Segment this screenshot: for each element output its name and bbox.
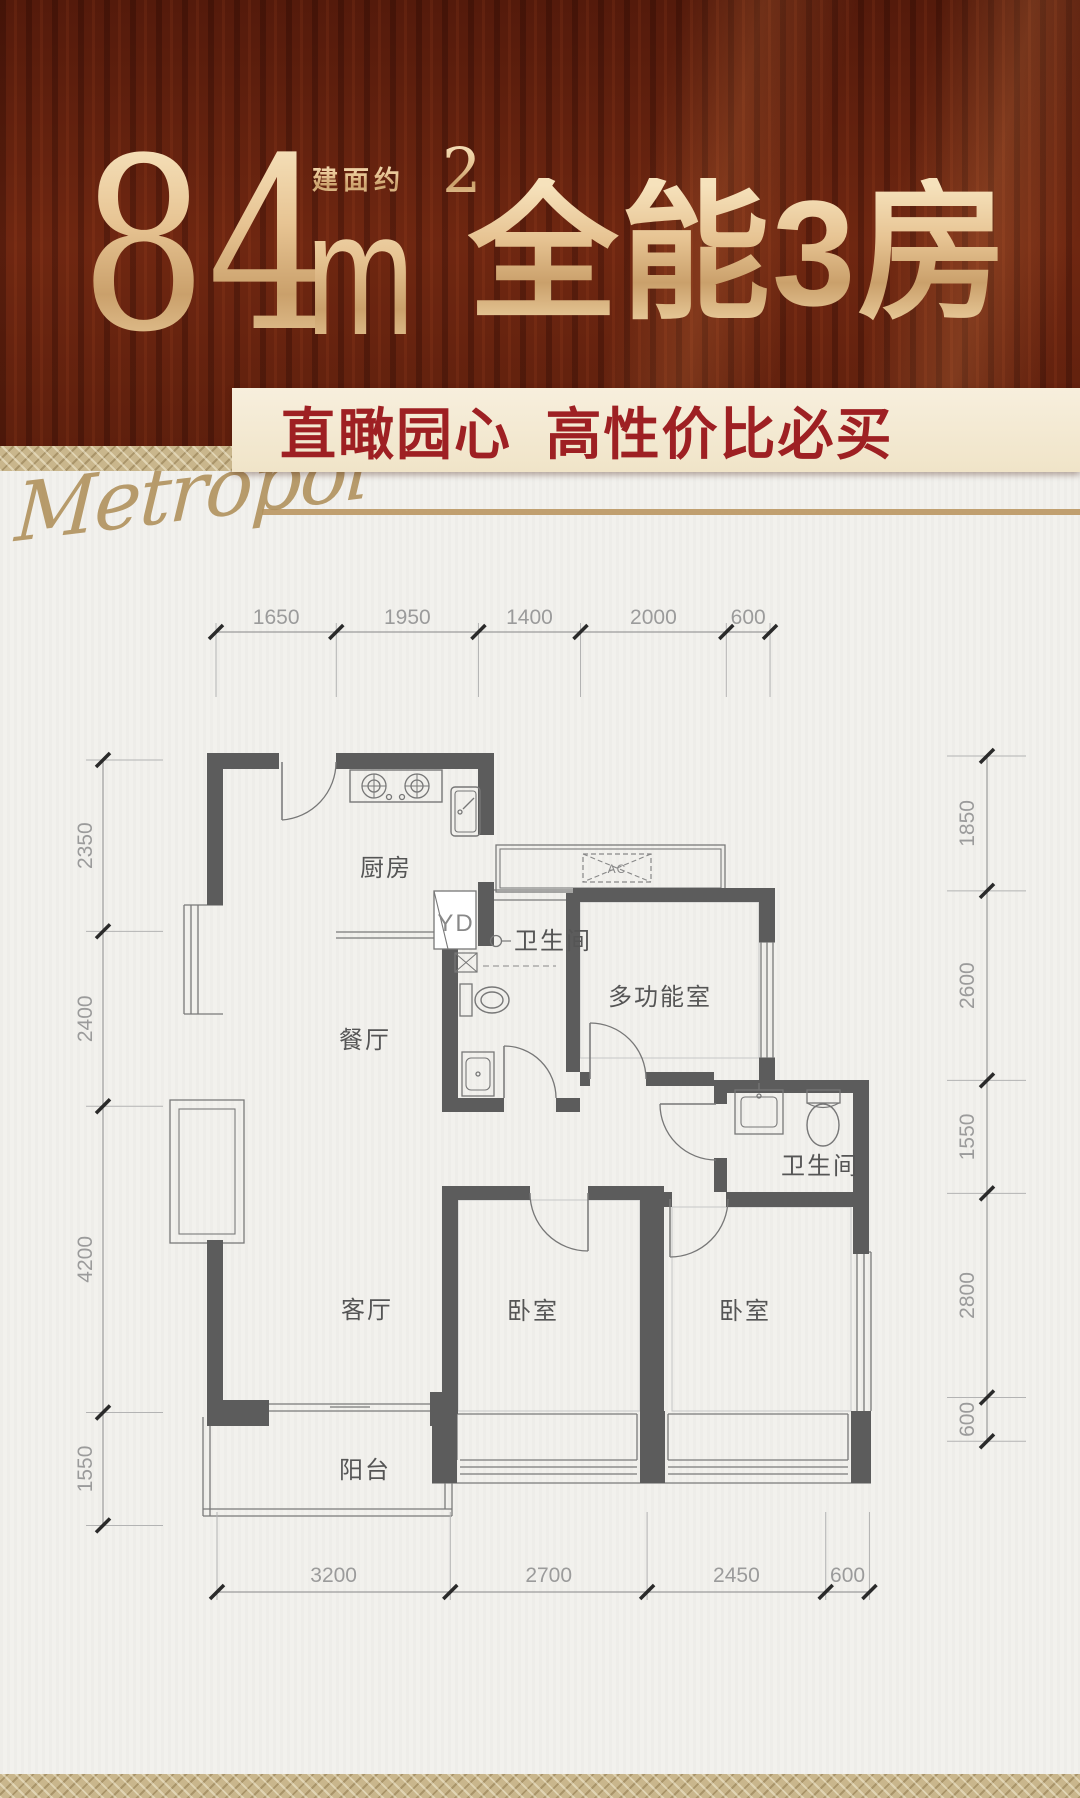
dim-top-label: 1950 (384, 606, 431, 629)
room-label-balcony: 阳台 (339, 1457, 391, 1484)
living-bay-window-inner (179, 1109, 235, 1234)
yd-label: YD (437, 910, 474, 937)
dim-top-label: 600 (731, 606, 766, 629)
bath1-sink (462, 1052, 494, 1096)
wall (207, 753, 223, 905)
dim-right-label: 2800 (956, 1272, 979, 1319)
room-label-bath1: 卫生间 (514, 928, 592, 955)
poster-page: 厨房餐厅客厅阳台多功能室卧室卧室卫生间卫生间YDAC16501950140020… (0, 0, 1080, 1798)
wall (851, 1411, 871, 1483)
room-label-dining: 餐厅 (339, 1027, 391, 1054)
dim-left-label: 2350 (74, 822, 97, 869)
dim-top-label: 1650 (253, 606, 300, 629)
wall (556, 1098, 580, 1112)
room-label-multi: 多功能室 (608, 984, 712, 1011)
wall (714, 1158, 727, 1192)
wall (207, 1240, 223, 1402)
dim-bottom-label: 2700 (525, 1564, 572, 1587)
area-number: 84 (80, 128, 334, 366)
multi-room-inner-face (580, 902, 759, 1058)
dim-left-label: 1550 (74, 1446, 97, 1493)
wall (853, 1093, 869, 1207)
wall (853, 1207, 869, 1254)
wall (640, 1186, 664, 1414)
toilet-bowl-inner (481, 992, 503, 1008)
wall (714, 1080, 869, 1093)
toilet-bowl (807, 1104, 839, 1146)
header: 84 建面约 m 2 全能3房 直瞰园心 高性价比必买 (0, 0, 1080, 472)
dim-right-label: 1550 (956, 1114, 979, 1161)
wall (714, 1093, 727, 1104)
room-label-bed1: 卧室 (507, 1298, 559, 1325)
wall (664, 1192, 672, 1207)
wall (478, 882, 494, 946)
dim-bottom-label: 2450 (713, 1564, 760, 1587)
wall (566, 893, 580, 1072)
slogan-text: 直瞰园心 高性价比必买 (280, 390, 894, 471)
toilet-tank (460, 984, 472, 1016)
room-label-kitchen: 厨房 (360, 855, 412, 882)
bath1-sink-basin (466, 1058, 490, 1090)
ac-label: AC (608, 862, 627, 876)
wall (759, 888, 775, 942)
stove-knob (400, 795, 405, 800)
wall (432, 1411, 457, 1483)
stitch-band-left (0, 446, 232, 471)
dim-right-label: 2600 (956, 962, 979, 1009)
wall (640, 1411, 665, 1483)
bath2-sink-basin (741, 1097, 777, 1127)
dim-right-label: 600 (956, 1402, 979, 1437)
kitchen-faucet (458, 810, 462, 814)
dim-bottom-label: 600 (830, 1564, 865, 1587)
wall (336, 753, 494, 769)
area-unit: m (306, 186, 414, 362)
wall (442, 1186, 458, 1414)
dim-left-label: 4200 (74, 1236, 97, 1283)
wall (646, 1072, 714, 1086)
wall (759, 1058, 775, 1080)
bath2-door-arc (660, 1104, 716, 1160)
wall (580, 1072, 590, 1086)
wall (207, 1400, 269, 1426)
room-label-living: 客厅 (341, 1297, 393, 1324)
dim-left-label: 2400 (74, 995, 97, 1042)
wall (573, 888, 759, 902)
bath1-door-arc (504, 1046, 556, 1098)
bed1-door-arc (530, 1193, 588, 1251)
room-label-bed2: 卧室 (719, 1298, 771, 1325)
bath2-faucet-dot (757, 1094, 761, 1098)
bath1-faucet (476, 1072, 480, 1076)
dim-top-label: 2000 (630, 606, 677, 629)
entry-door-arc (282, 762, 336, 820)
bed2-door-arc (670, 1199, 728, 1257)
kitchen-faucet-handle (463, 798, 474, 809)
room-label-bath2: 卫生间 (781, 1153, 859, 1180)
toilet-bowl (475, 987, 509, 1013)
multi-door-arc (590, 1023, 646, 1079)
slogan-banner: 直瞰园心 高性价比必买 (232, 388, 1080, 472)
dim-top-label: 1400 (506, 606, 553, 629)
wall (442, 1098, 504, 1112)
living-bay-window (170, 1100, 244, 1243)
headline: 全能3房 (468, 178, 1009, 328)
dim-bottom-label: 3200 (310, 1564, 357, 1587)
dim-right-label: 1850 (956, 800, 979, 847)
wall (726, 1192, 869, 1207)
stove-knob (387, 795, 392, 800)
